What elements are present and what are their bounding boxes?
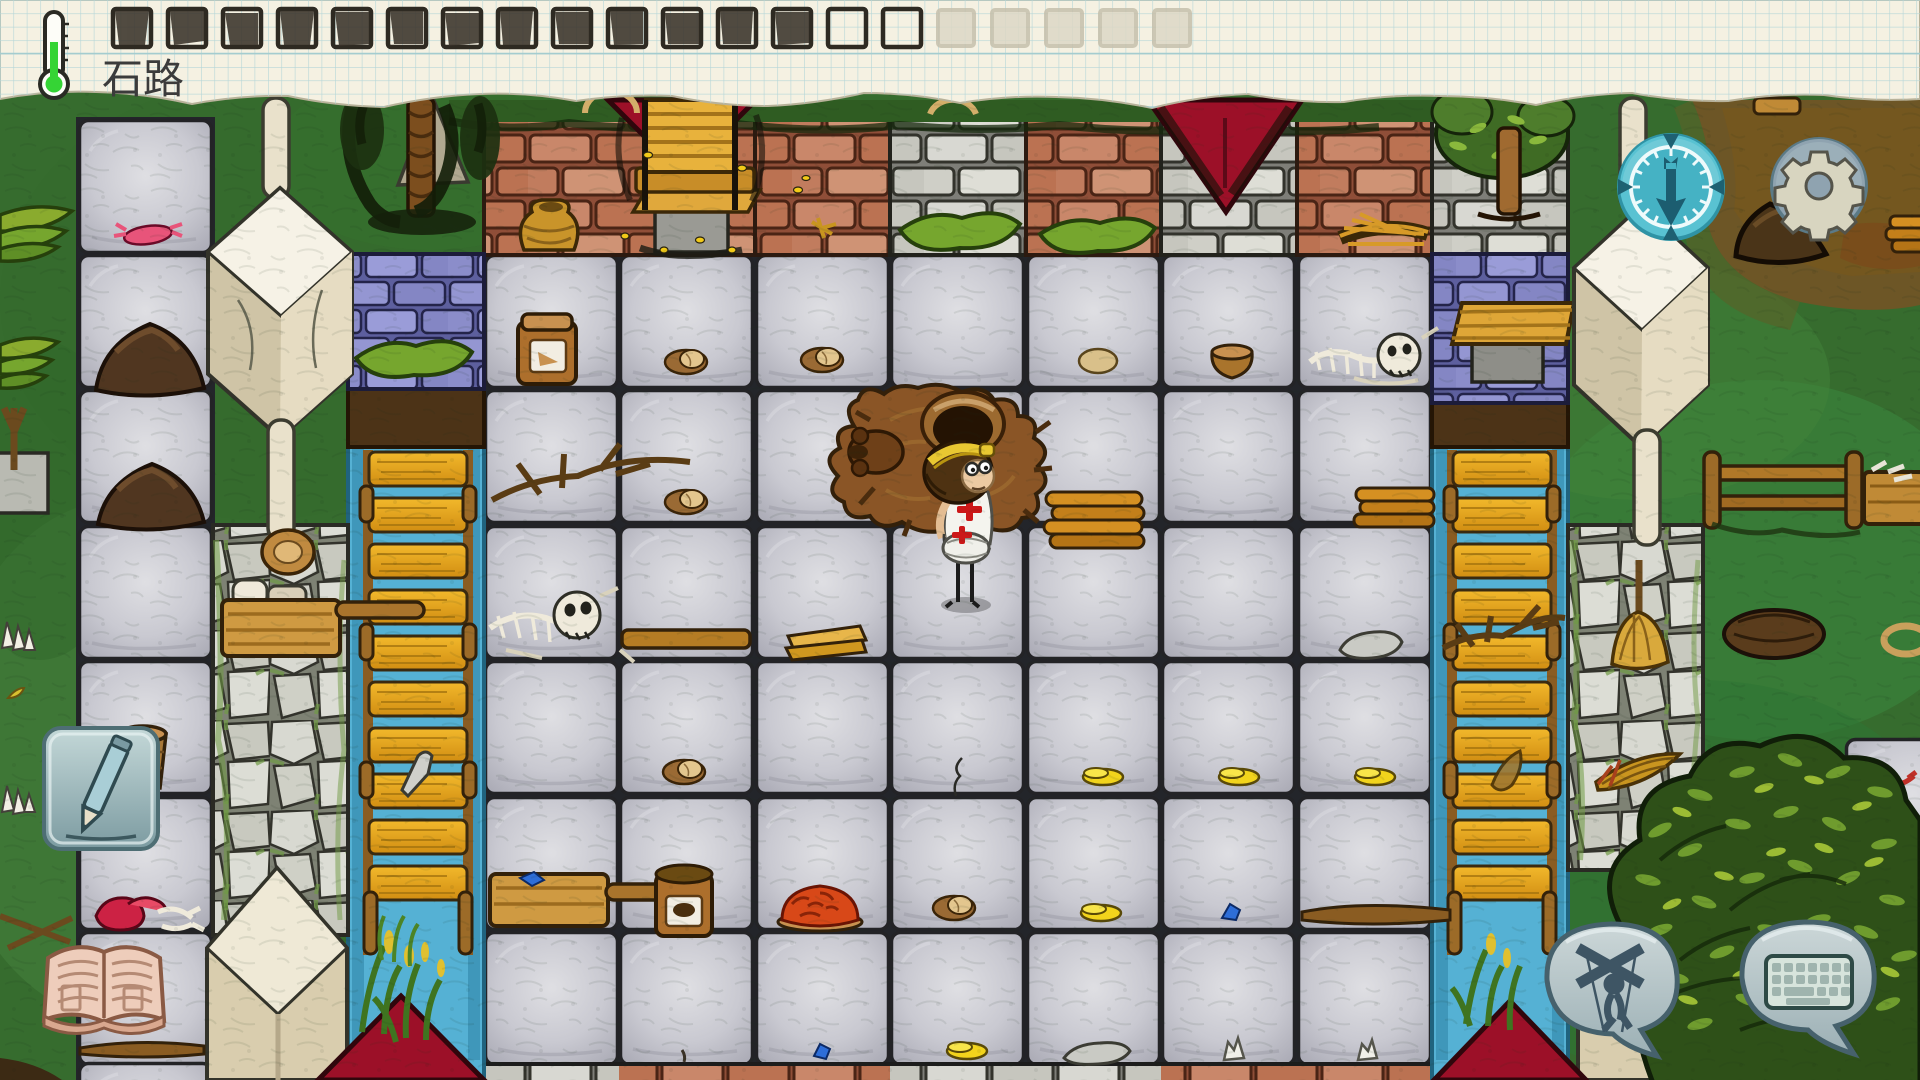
svg-text:石路: 石路 [102,56,184,102]
